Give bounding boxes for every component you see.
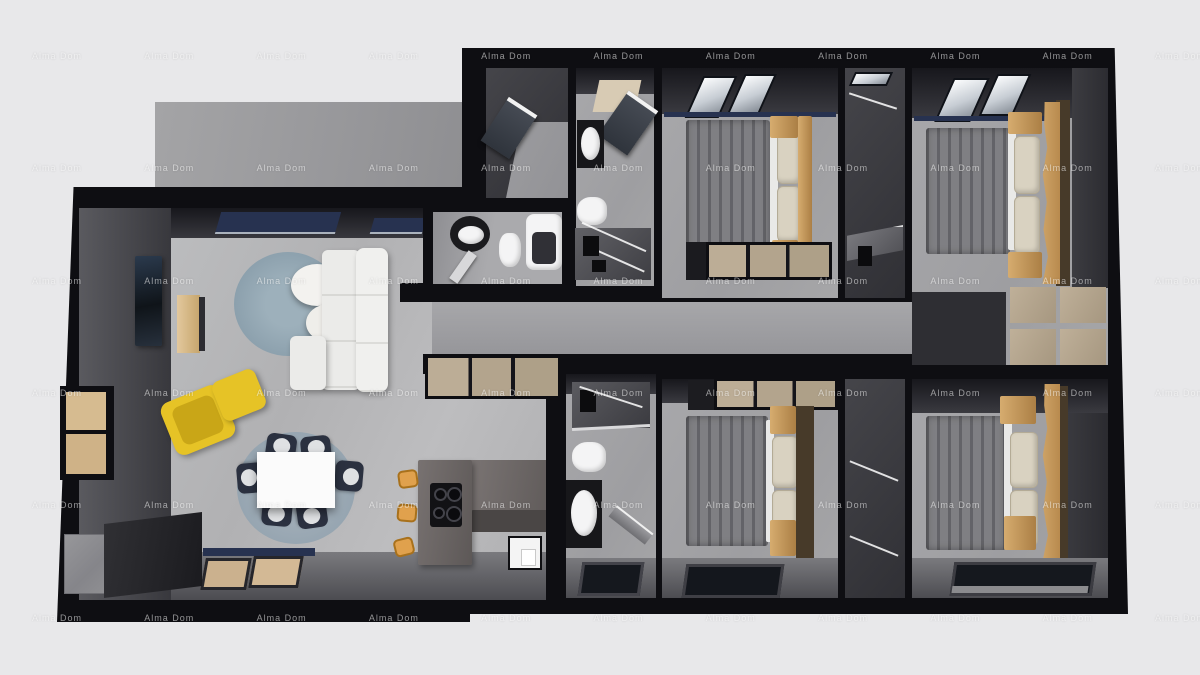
- watermark-text: Alma Dom: [257, 276, 307, 286]
- watermark-text: Alma Dom: [369, 276, 419, 286]
- watermark-text: Alma Dom: [706, 51, 756, 61]
- watermark-text: Alma Dom: [369, 163, 419, 173]
- watermark-text: Alma Dom: [257, 613, 307, 623]
- watermark-text: Alma Dom: [818, 163, 868, 173]
- watermark-text: Alma Dom: [593, 276, 643, 286]
- watermark-text: Alma Dom: [32, 500, 82, 510]
- watermark-text: Alma Dom: [257, 388, 307, 398]
- watermark-text: Alma Dom: [593, 51, 643, 61]
- watermark-text: Alma Dom: [930, 388, 980, 398]
- watermark-text: Alma Dom: [1043, 500, 1093, 510]
- watermark-layer: Alma DomAlma DomAlma DomAlma DomAlma Dom…: [0, 0, 1200, 675]
- watermark-text: Alma Dom: [706, 276, 756, 286]
- watermark-text: Alma Dom: [818, 276, 868, 286]
- watermark-text: Alma Dom: [818, 388, 868, 398]
- watermark-text: Alma Dom: [32, 388, 82, 398]
- watermark-text: Alma Dom: [818, 613, 868, 623]
- watermark-text: Alma Dom: [481, 388, 531, 398]
- watermark-text: Alma Dom: [1155, 500, 1200, 510]
- watermark-text: Alma Dom: [144, 276, 194, 286]
- watermark-text: Alma Dom: [144, 51, 194, 61]
- watermark-text: Alma Dom: [369, 388, 419, 398]
- watermark-text: Alma Dom: [706, 163, 756, 173]
- watermark-text: Alma Dom: [1155, 51, 1200, 61]
- watermark-text: Alma Dom: [481, 51, 531, 61]
- watermark-text: Alma Dom: [32, 276, 82, 286]
- watermark-text: Alma Dom: [1043, 276, 1093, 286]
- watermark-text: Alma Dom: [144, 388, 194, 398]
- watermark-text: Alma Dom: [481, 613, 531, 623]
- watermark-text: Alma Dom: [593, 163, 643, 173]
- watermark-text: Alma Dom: [32, 51, 82, 61]
- watermark-text: Alma Dom: [32, 613, 82, 623]
- watermark-text: Alma Dom: [32, 163, 82, 173]
- watermark-text: Alma Dom: [481, 276, 531, 286]
- floor-plan-render: Alma DomAlma DomAlma DomAlma DomAlma Dom…: [0, 0, 1200, 675]
- watermark-text: Alma Dom: [706, 388, 756, 398]
- watermark-text: Alma Dom: [257, 500, 307, 510]
- watermark-text: Alma Dom: [144, 163, 194, 173]
- watermark-text: Alma Dom: [930, 500, 980, 510]
- watermark-text: Alma Dom: [1155, 613, 1200, 623]
- watermark-text: Alma Dom: [706, 613, 756, 623]
- watermark-text: Alma Dom: [930, 276, 980, 286]
- watermark-text: Alma Dom: [593, 388, 643, 398]
- watermark-text: Alma Dom: [930, 613, 980, 623]
- watermark-text: Alma Dom: [1043, 51, 1093, 61]
- watermark-text: Alma Dom: [1043, 613, 1093, 623]
- watermark-text: Alma Dom: [818, 500, 868, 510]
- watermark-text: Alma Dom: [369, 51, 419, 61]
- watermark-text: Alma Dom: [1155, 388, 1200, 398]
- watermark-text: Alma Dom: [369, 613, 419, 623]
- watermark-text: Alma Dom: [706, 500, 756, 510]
- watermark-text: Alma Dom: [369, 500, 419, 510]
- watermark-text: Alma Dom: [1043, 388, 1093, 398]
- watermark-text: Alma Dom: [930, 163, 980, 173]
- watermark-text: Alma Dom: [1155, 276, 1200, 286]
- watermark-text: Alma Dom: [930, 51, 980, 61]
- watermark-text: Alma Dom: [257, 51, 307, 61]
- watermark-text: Alma Dom: [481, 163, 531, 173]
- watermark-text: Alma Dom: [144, 613, 194, 623]
- watermark-text: Alma Dom: [257, 163, 307, 173]
- watermark-text: Alma Dom: [481, 500, 531, 510]
- watermark-text: Alma Dom: [1155, 163, 1200, 173]
- watermark-text: Alma Dom: [144, 500, 194, 510]
- watermark-text: Alma Dom: [818, 51, 868, 61]
- watermark-text: Alma Dom: [593, 613, 643, 623]
- watermark-text: Alma Dom: [1043, 163, 1093, 173]
- watermark-text: Alma Dom: [593, 500, 643, 510]
